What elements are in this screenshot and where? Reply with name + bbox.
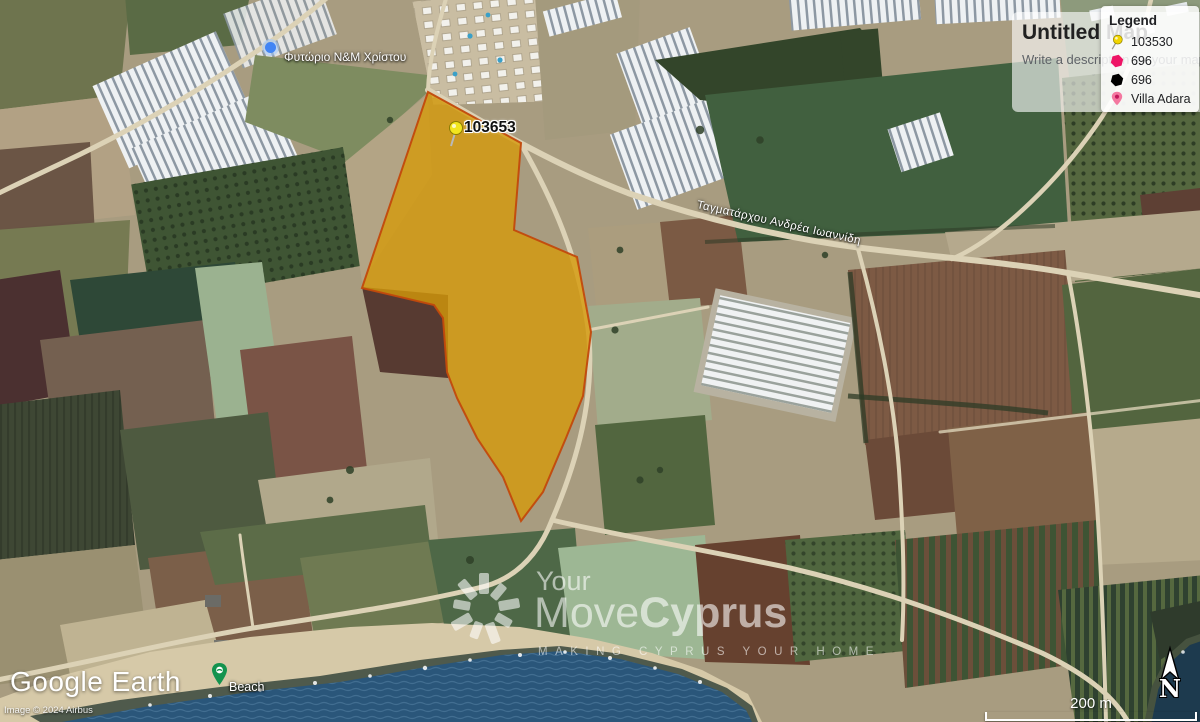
nursery-label: Φυτώριο N&M Χρίστου — [284, 50, 406, 64]
legend-panel: Legend 103530 696 696 — [1101, 6, 1199, 112]
pushpin-icon — [1109, 33, 1125, 51]
beach-label: Beach — [229, 680, 264, 694]
google-earth-logo-word2: Earth — [112, 666, 181, 697]
nursery-poi-icon[interactable] — [265, 42, 276, 53]
parcel-pin-label[interactable]: 103653 — [464, 119, 516, 137]
imagery-copyright: Image © 2024 Airbus — [4, 705, 93, 716]
beach-pin-icon[interactable] — [211, 662, 228, 686]
scale-line — [985, 712, 1197, 721]
legend-item-label: Villa Adara — [1131, 92, 1191, 106]
legend-item-label: 103530 — [1131, 35, 1173, 49]
google-earth-logo-word1: Google — [10, 666, 103, 697]
google-earth-viewport[interactable]: 103653 Φυτώριο N&M Χρίστου Ταγματάρχου Α… — [0, 0, 1200, 722]
place-pin-icon — [1109, 90, 1125, 107]
legend-item-label: 696 — [1131, 73, 1152, 87]
legend-item-103530[interactable]: 103530 — [1109, 32, 1193, 51]
scale-label: 200 m — [985, 695, 1197, 712]
google-earth-logo: Google Earth — [10, 666, 181, 698]
legend-item-696-black[interactable]: 696 — [1109, 70, 1193, 89]
legend-item-696-pink[interactable]: 696 — [1109, 51, 1193, 70]
north-compass[interactable]: N — [1148, 644, 1192, 702]
legend-item-villa-adara[interactable]: Villa Adara — [1109, 89, 1193, 108]
polygon-icon — [1109, 72, 1125, 88]
polygon-icon — [1109, 53, 1125, 69]
scale-bar: 200 m — [985, 695, 1197, 721]
legend-item-label: 696 — [1131, 54, 1152, 68]
legend-heading: Legend — [1109, 13, 1193, 28]
